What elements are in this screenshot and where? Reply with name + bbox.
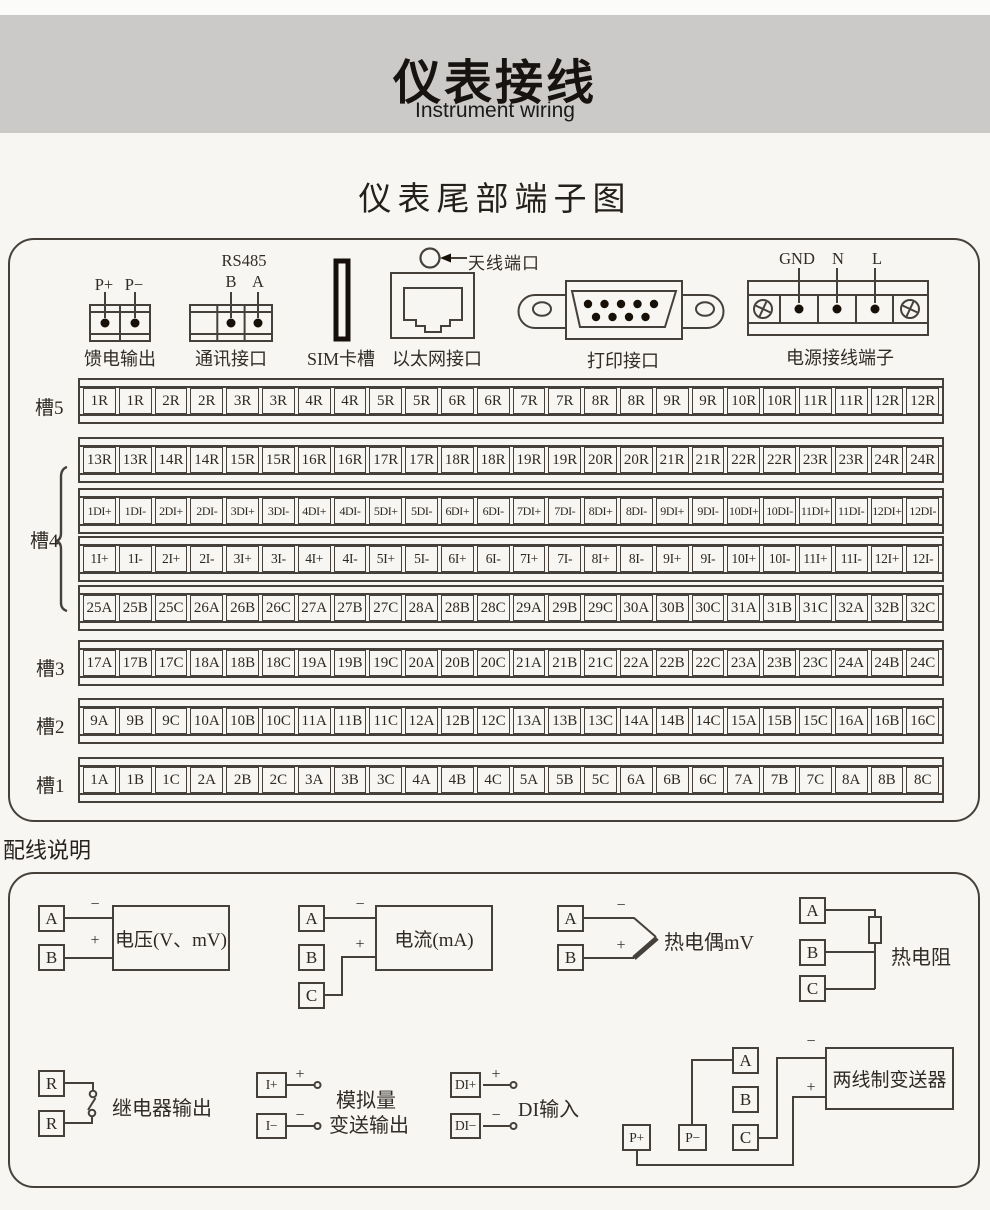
terminal-cell: 22A <box>620 650 653 676</box>
terminal-cell: 6R <box>441 388 474 414</box>
terminal-cell: 6I- <box>477 546 510 572</box>
terminal-cell: 1R <box>83 388 116 414</box>
row-bottom-band <box>80 414 942 422</box>
transmitter-terminal-b: B <box>732 1086 759 1113</box>
terminal-cell: 13R <box>119 447 152 473</box>
terminal-cell: 15B <box>763 708 796 734</box>
transmitter-minus-sign: − <box>801 1033 821 1051</box>
terminal-cell: 4I+ <box>298 546 331 572</box>
terminal-cell: 31A <box>727 595 760 621</box>
terminal-cell: 26C <box>262 595 295 621</box>
analog-label-line2: 变送输出 <box>329 1109 409 1138</box>
terminal-cell: 27A <box>298 595 331 621</box>
terminal-cell: 3DI+ <box>226 498 259 524</box>
terminal-cell: 9DI+ <box>656 498 689 524</box>
row-cells: 1A1B1C2A2B2C3A3B3C4A4B4C5A5B5C6A6B6C7A7B… <box>80 767 942 793</box>
row-cells: 13R13R14R14R15R15R16R16R17R17R18R18R19R1… <box>80 447 942 473</box>
terminal-cell: 2I- <box>190 546 223 572</box>
terminal-cell: 18R <box>477 447 510 473</box>
terminal-cell: 23C <box>799 650 832 676</box>
top-strip <box>0 0 990 15</box>
terminal-cell: 3C <box>369 767 402 793</box>
terminal-cell: 15C <box>799 708 832 734</box>
voltage-terminal-b: B <box>38 944 65 971</box>
slot-label-2: 槽2 <box>36 712 65 739</box>
terminal-cell: 24R <box>906 447 939 473</box>
terminal-cell: 8DI- <box>620 498 653 524</box>
terminal-cell: 5R <box>369 388 402 414</box>
row-cells: 25A25B25C26A26B26C27A27B27C28A28B28C29A2… <box>80 595 942 621</box>
thermocouple-plus-sign: + <box>611 937 631 955</box>
terminal-cell: 29B <box>548 595 581 621</box>
terminal-cell: 4B <box>441 767 474 793</box>
transmitter-device-box: 两线制变送器 <box>825 1047 954 1110</box>
terminal-cell: 6I+ <box>441 546 474 572</box>
terminal-cell: 28A <box>405 595 438 621</box>
page: 仪表接线 Instrument wiring 仪表尾部端子图 <box>0 0 990 1210</box>
terminal-row-slot3: 17A17B17C18A18B18C19A19B19C20A20B20C21A2… <box>78 640 944 686</box>
terminal-cell: 25A <box>83 595 116 621</box>
terminal-cell: 5I- <box>405 546 438 572</box>
terminal-cell: 24A <box>835 650 868 676</box>
transmitter-terminal-a: A <box>732 1047 759 1074</box>
di-plus-sign: + <box>486 1066 506 1084</box>
terminal-cell: 24B <box>871 650 904 676</box>
terminal-cell: 11DI- <box>835 498 868 524</box>
analog-terminal-iminus: I− <box>256 1113 287 1139</box>
row-bottom-band <box>80 473 942 481</box>
terminal-cell: 21C <box>584 650 617 676</box>
terminal-cell: 9I- <box>692 546 725 572</box>
terminal-cell: 19R <box>548 447 581 473</box>
terminal-row-di: 1DI+1DI-2DI+2DI-3DI+3DI-4DI+4DI-5DI+5DI-… <box>78 488 944 534</box>
terminal-cell: 19R <box>513 447 546 473</box>
comm-pin-b: B <box>225 272 236 292</box>
comm-caption: 通讯接口 <box>171 345 291 371</box>
terminal-cell: 15A <box>727 708 760 734</box>
terminal-cell: 23A <box>727 650 760 676</box>
row-top-band <box>80 587 942 595</box>
feed-caption: 馈电输出 <box>60 345 180 371</box>
terminal-cell: 4A <box>405 767 438 793</box>
terminal-cell: 24R <box>871 447 904 473</box>
terminal-cell: 2A <box>190 767 223 793</box>
printer-caption: 打印接口 <box>563 347 683 373</box>
terminal-cell: 16A <box>835 708 868 734</box>
row-bottom-band <box>80 793 942 801</box>
row-top-band <box>80 538 942 546</box>
row-top-band <box>80 490 942 498</box>
terminal-cell: 20B <box>441 650 474 676</box>
terminal-cell: 4I- <box>334 546 367 572</box>
terminal-cell: 12C <box>477 708 510 734</box>
terminal-cell: 11I+ <box>799 546 832 572</box>
terminal-cell: 32A <box>835 595 868 621</box>
terminal-cell: 11R <box>835 388 868 414</box>
transmitter-plus-sign: + <box>801 1079 821 1097</box>
terminal-row-25a-32c: 25A25B25C26A26B26C27A27B27C28A28B28C29A2… <box>78 585 944 631</box>
terminal-cell: 1B <box>119 767 152 793</box>
power-pin-l: L <box>872 249 882 269</box>
rtd-terminal-c: C <box>799 975 826 1002</box>
antenna-caption: 天线端口 <box>468 249 540 274</box>
row-cells: 1I+1I-2I+2I-3I+3I-4I+4I-5I+5I-6I+6I-7I+7… <box>80 546 942 572</box>
header-banner: 仪表接线 Instrument wiring <box>0 15 990 133</box>
terminal-cell: 22B <box>656 650 689 676</box>
terminal-cell: 11C <box>369 708 402 734</box>
row-cells: 17A17B17C18A18B18C19A19B19C20A20B20C21A2… <box>80 650 942 676</box>
terminal-cell: 6B <box>656 767 689 793</box>
terminal-cell: 18R <box>441 447 474 473</box>
terminal-cell: 1C <box>155 767 188 793</box>
current-plus-sign: + <box>350 936 370 954</box>
rtd-terminal-a: A <box>799 897 826 924</box>
terminal-cell: 5A <box>513 767 546 793</box>
terminal-cell: 27C <box>369 595 402 621</box>
row-bottom-band <box>80 734 942 742</box>
terminal-cell: 1I+ <box>83 546 116 572</box>
terminal-cell: 25B <box>119 595 152 621</box>
slot-label-3: 槽3 <box>36 654 65 681</box>
terminal-cell: 10DI+ <box>727 498 760 524</box>
terminal-cell: 22C <box>692 650 725 676</box>
feed-pin-plus: P+ <box>95 275 113 295</box>
relay-terminal-r1: R <box>38 1070 65 1097</box>
voltage-plus-sign: + <box>85 932 105 950</box>
terminal-cell: 17A <box>83 650 116 676</box>
terminal-cell: 2R <box>190 388 223 414</box>
terminal-cell: 13A <box>513 708 546 734</box>
terminal-cell: 7C <box>799 767 832 793</box>
terminal-cell: 1A <box>83 767 116 793</box>
current-device-box: 电流(mA) <box>375 905 493 971</box>
current-terminal-b: B <box>298 944 325 971</box>
rs485-label: RS485 <box>222 251 267 271</box>
terminal-cell: 5I+ <box>369 546 402 572</box>
power-caption: 电源接线端子 <box>760 344 920 370</box>
terminal-cell: 25C <box>155 595 188 621</box>
relay-terminal-r2: R <box>38 1110 65 1137</box>
row-bottom-band <box>80 676 942 684</box>
slot-label-4: 槽4 <box>30 526 59 553</box>
terminal-row-slot1: 1A1B1C2A2B2C3A3B3C4A4B4C5A5B5C6A6B6C7A7B… <box>78 757 944 803</box>
terminal-cell: 30C <box>692 595 725 621</box>
terminal-cell: 21A <box>513 650 546 676</box>
terminal-cell: 23R <box>835 447 868 473</box>
terminal-cell: 12DI- <box>906 498 939 524</box>
terminal-cell: 7DI- <box>548 498 581 524</box>
terminal-cell: 19B <box>334 650 367 676</box>
terminal-cell: 14B <box>656 708 689 734</box>
terminal-cell: 3A <box>298 767 331 793</box>
terminal-cell: 17B <box>119 650 152 676</box>
terminal-cell: 10A <box>190 708 223 734</box>
terminal-cell: 19C <box>369 650 402 676</box>
terminal-cell: 32B <box>871 595 904 621</box>
terminal-cell: 20A <box>405 650 438 676</box>
terminal-cell: 12I- <box>906 546 939 572</box>
terminal-cell: 16R <box>298 447 331 473</box>
terminal-cell: 6DI- <box>477 498 510 524</box>
terminal-cell: 6DI+ <box>441 498 474 524</box>
terminal-cell: 14C <box>692 708 725 734</box>
terminal-cell: 10B <box>226 708 259 734</box>
thermocouple-terminal-b: B <box>557 944 584 971</box>
current-terminal-a: A <box>298 905 325 932</box>
terminal-cell: 10R <box>763 388 796 414</box>
terminal-cell: 6R <box>477 388 510 414</box>
terminal-cell: 8I+ <box>584 546 617 572</box>
terminal-cell: 10I+ <box>727 546 760 572</box>
relay-label: 继电器输出 <box>112 1092 212 1121</box>
terminal-cell: 27B <box>334 595 367 621</box>
row-top-band <box>80 700 942 708</box>
terminal-cell: 5DI+ <box>369 498 402 524</box>
terminal-cell: 2DI- <box>190 498 223 524</box>
terminal-cell: 18A <box>190 650 223 676</box>
terminal-cell: 17C <box>155 650 188 676</box>
terminal-cell: 31B <box>763 595 796 621</box>
terminal-cell: 31C <box>799 595 832 621</box>
terminal-cell: 4DI- <box>334 498 367 524</box>
terminal-cell: 3R <box>262 388 295 414</box>
terminal-cell: 2I+ <box>155 546 188 572</box>
row-cells: 9A9B9C10A10B10C11A11B11C12A12B12C13A13B1… <box>80 708 942 734</box>
terminal-cell: 3R <box>226 388 259 414</box>
terminal-cell: 12I+ <box>871 546 904 572</box>
terminal-cell: 4R <box>334 388 367 414</box>
di-terminal-plus: DI+ <box>450 1072 481 1098</box>
terminal-cell: 7B <box>763 767 796 793</box>
terminal-cell: 17R <box>405 447 438 473</box>
terminal-cell: 21B <box>548 650 581 676</box>
terminal-cell: 1I- <box>119 546 152 572</box>
slot-label-1: 槽1 <box>36 771 65 798</box>
terminal-cell: 7R <box>513 388 546 414</box>
current-terminal-c: C <box>298 982 325 1009</box>
terminal-cell: 12R <box>871 388 904 414</box>
current-minus-sign: − <box>350 896 370 914</box>
terminal-cell: 1R <box>119 388 152 414</box>
terminal-cell: 2C <box>262 767 295 793</box>
row-cells: 1R1R2R2R3R3R4R4R5R5R6R6R7R7R8R8R9R9R10R1… <box>80 388 942 414</box>
terminal-cell: 16C <box>906 708 939 734</box>
terminal-cell: 18C <box>262 650 295 676</box>
terminal-cell: 8I- <box>620 546 653 572</box>
terminal-cell: 3DI- <box>262 498 295 524</box>
row-top-band <box>80 642 942 650</box>
transmitter-terminal-pplus: P+ <box>622 1124 651 1151</box>
terminal-cell: 5R <box>405 388 438 414</box>
terminal-cell: 1DI- <box>119 498 152 524</box>
rtd-terminal-b: B <box>799 939 826 966</box>
row-bottom-band <box>80 621 942 629</box>
terminal-cell: 7DI+ <box>513 498 546 524</box>
terminal-cell: 22R <box>763 447 796 473</box>
terminal-cell: 3I+ <box>226 546 259 572</box>
terminal-cell: 7R <box>548 388 581 414</box>
voltage-device-box: 电压(V、mV) <box>112 905 230 971</box>
terminal-cell: 24C <box>906 650 939 676</box>
terminal-cell: 32C <box>906 595 939 621</box>
terminal-cell: 7A <box>727 767 760 793</box>
terminal-cell: 21R <box>656 447 689 473</box>
terminal-cell: 30A <box>620 595 653 621</box>
terminal-cell: 5DI- <box>405 498 438 524</box>
terminal-cell: 8DI+ <box>584 498 617 524</box>
di-terminal-minus: DI− <box>450 1113 481 1139</box>
terminal-cell: 12DI+ <box>871 498 904 524</box>
terminal-cell: 15R <box>226 447 259 473</box>
terminal-cell: 7I- <box>548 546 581 572</box>
transmitter-terminal-pminus: P− <box>678 1124 707 1151</box>
terminal-cell: 22R <box>727 447 760 473</box>
di-label: DI输入 <box>518 1093 579 1122</box>
row-top-band <box>80 380 942 388</box>
row-bottom-band <box>80 524 942 532</box>
terminal-cell: 20R <box>620 447 653 473</box>
terminal-cell: 26B <box>226 595 259 621</box>
terminal-cell: 23B <box>763 650 796 676</box>
thermocouple-label: 热电偶mV <box>664 926 754 955</box>
terminal-cell: 30B <box>656 595 689 621</box>
page-subtitle: Instrument wiring <box>0 99 990 123</box>
terminal-cell: 14R <box>190 447 223 473</box>
terminal-cell: 8R <box>584 388 617 414</box>
thermocouple-minus-sign: − <box>611 897 631 915</box>
terminal-cell: 9I+ <box>656 546 689 572</box>
terminal-cell: 11DI+ <box>799 498 832 524</box>
power-pin-n: N <box>832 249 844 269</box>
terminal-cell: 16B <box>871 708 904 734</box>
terminal-cell: 12B <box>441 708 474 734</box>
terminal-cell: 10R <box>727 388 760 414</box>
terminal-cell: 20C <box>477 650 510 676</box>
terminal-cell: 18B <box>226 650 259 676</box>
analog-terminal-iplus: I+ <box>256 1072 287 1098</box>
terminal-row-slot2: 9A9B9C10A10B10C11A11B11C12A12B12C13A13B1… <box>78 698 944 744</box>
terminal-cell: 13C <box>584 708 617 734</box>
di-minus-sign: − <box>486 1107 506 1125</box>
terminal-cell: 3B <box>334 767 367 793</box>
terminal-cell: 9R <box>656 388 689 414</box>
terminal-cell: 9A <box>83 708 116 734</box>
terminal-cell: 14A <box>620 708 653 734</box>
terminal-cell: 19A <box>298 650 331 676</box>
terminal-cell: 7I+ <box>513 546 546 572</box>
terminal-cell: 13B <box>548 708 581 734</box>
terminal-cell: 12A <box>405 708 438 734</box>
terminal-cell: 20R <box>584 447 617 473</box>
terminal-cell: 2R <box>155 388 188 414</box>
thermocouple-terminal-a: A <box>557 905 584 932</box>
terminal-cell: 9DI- <box>692 498 725 524</box>
terminal-cell: 29A <box>513 595 546 621</box>
terminal-cell: 1DI+ <box>83 498 116 524</box>
terminal-cell: 6C <box>692 767 725 793</box>
terminal-cell: 9R <box>692 388 725 414</box>
terminal-row-13r-24r: 13R13R14R14R15R15R16R16R17R17R18R18R19R1… <box>78 437 944 483</box>
terminal-cell: 15R <box>262 447 295 473</box>
terminal-cell: 10C <box>262 708 295 734</box>
terminal-cell: 13R <box>83 447 116 473</box>
terminal-cell: 12R <box>906 388 939 414</box>
terminal-cell: 26A <box>190 595 223 621</box>
ethernet-caption: 以太网接口 <box>377 345 497 371</box>
terminal-cell: 11R <box>799 388 832 414</box>
terminal-cell: 6A <box>620 767 653 793</box>
row-cells: 1DI+1DI-2DI+2DI-3DI+3DI-4DI+4DI-5DI+5DI-… <box>80 498 942 524</box>
terminal-section-title: 仪表尾部端子图 <box>0 172 990 220</box>
analog-plus-sign: + <box>290 1066 310 1084</box>
terminal-cell: 3I- <box>262 546 295 572</box>
terminal-cell: 21R <box>692 447 725 473</box>
terminal-cell: 10I- <box>763 546 796 572</box>
terminal-cell: 29C <box>584 595 617 621</box>
terminal-cell: 8B <box>871 767 904 793</box>
terminal-cell: 4R <box>298 388 331 414</box>
terminal-cell: 28C <box>477 595 510 621</box>
terminal-cell: 28B <box>441 595 474 621</box>
terminal-cell: 4C <box>477 767 510 793</box>
wiring-section-title: 配线说明 <box>3 833 91 865</box>
row-top-band <box>80 439 942 447</box>
feed-pin-minus: P− <box>125 275 143 295</box>
power-pin-gnd: GND <box>779 249 815 269</box>
terminal-cell: 5B <box>548 767 581 793</box>
slot-label-5: 槽5 <box>35 393 64 420</box>
terminal-cell: 11B <box>334 708 367 734</box>
terminal-cell: 8R <box>620 388 653 414</box>
transmitter-terminal-c: C <box>732 1124 759 1151</box>
terminal-cell: 5C <box>584 767 617 793</box>
terminal-cell: 9B <box>119 708 152 734</box>
voltage-terminal-a: A <box>38 905 65 932</box>
terminal-cell: 2DI+ <box>155 498 188 524</box>
terminal-cell: 2B <box>226 767 259 793</box>
terminal-cell: 9C <box>155 708 188 734</box>
voltage-minus-sign: − <box>85 896 105 914</box>
row-bottom-band <box>80 572 942 580</box>
terminal-cell: 17R <box>369 447 402 473</box>
analog-minus-sign: − <box>290 1107 310 1125</box>
row-top-band <box>80 759 942 767</box>
terminal-cell: 4DI+ <box>298 498 331 524</box>
terminal-cell: 8A <box>835 767 868 793</box>
rtd-label: 热电阻 <box>891 941 951 970</box>
terminal-cell: 23R <box>799 447 832 473</box>
terminal-cell: 16R <box>334 447 367 473</box>
terminal-row-slot5: 1R1R2R2R3R3R4R4R5R5R6R6R7R7R8R8R9R9R10R1… <box>78 378 944 424</box>
comm-pin-a: A <box>252 272 264 292</box>
terminal-cell: 14R <box>155 447 188 473</box>
terminal-cell: 11I- <box>835 546 868 572</box>
terminal-cell: 11A <box>298 708 331 734</box>
terminal-cell: 10DI- <box>763 498 796 524</box>
terminal-cell: 8C <box>906 767 939 793</box>
terminal-row-i: 1I+1I-2I+2I-3I+3I-4I+4I-5I+5I-6I+6I-7I+7… <box>78 536 944 582</box>
